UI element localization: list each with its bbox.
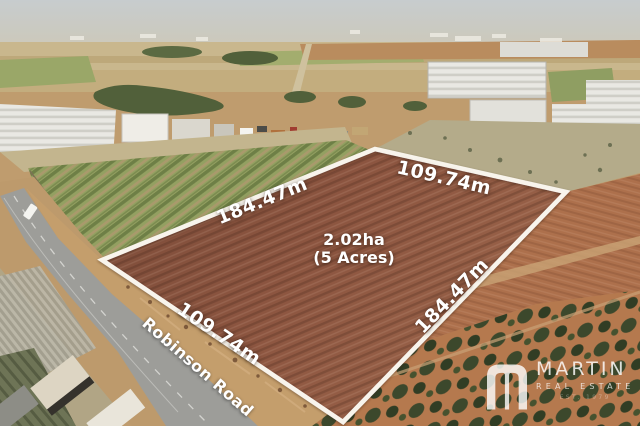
aerial-photo-art	[0, 0, 640, 426]
aerial-property-photo: 109.74m 184.47m 184.47m 109.74m 2.02ha (…	[0, 0, 640, 426]
